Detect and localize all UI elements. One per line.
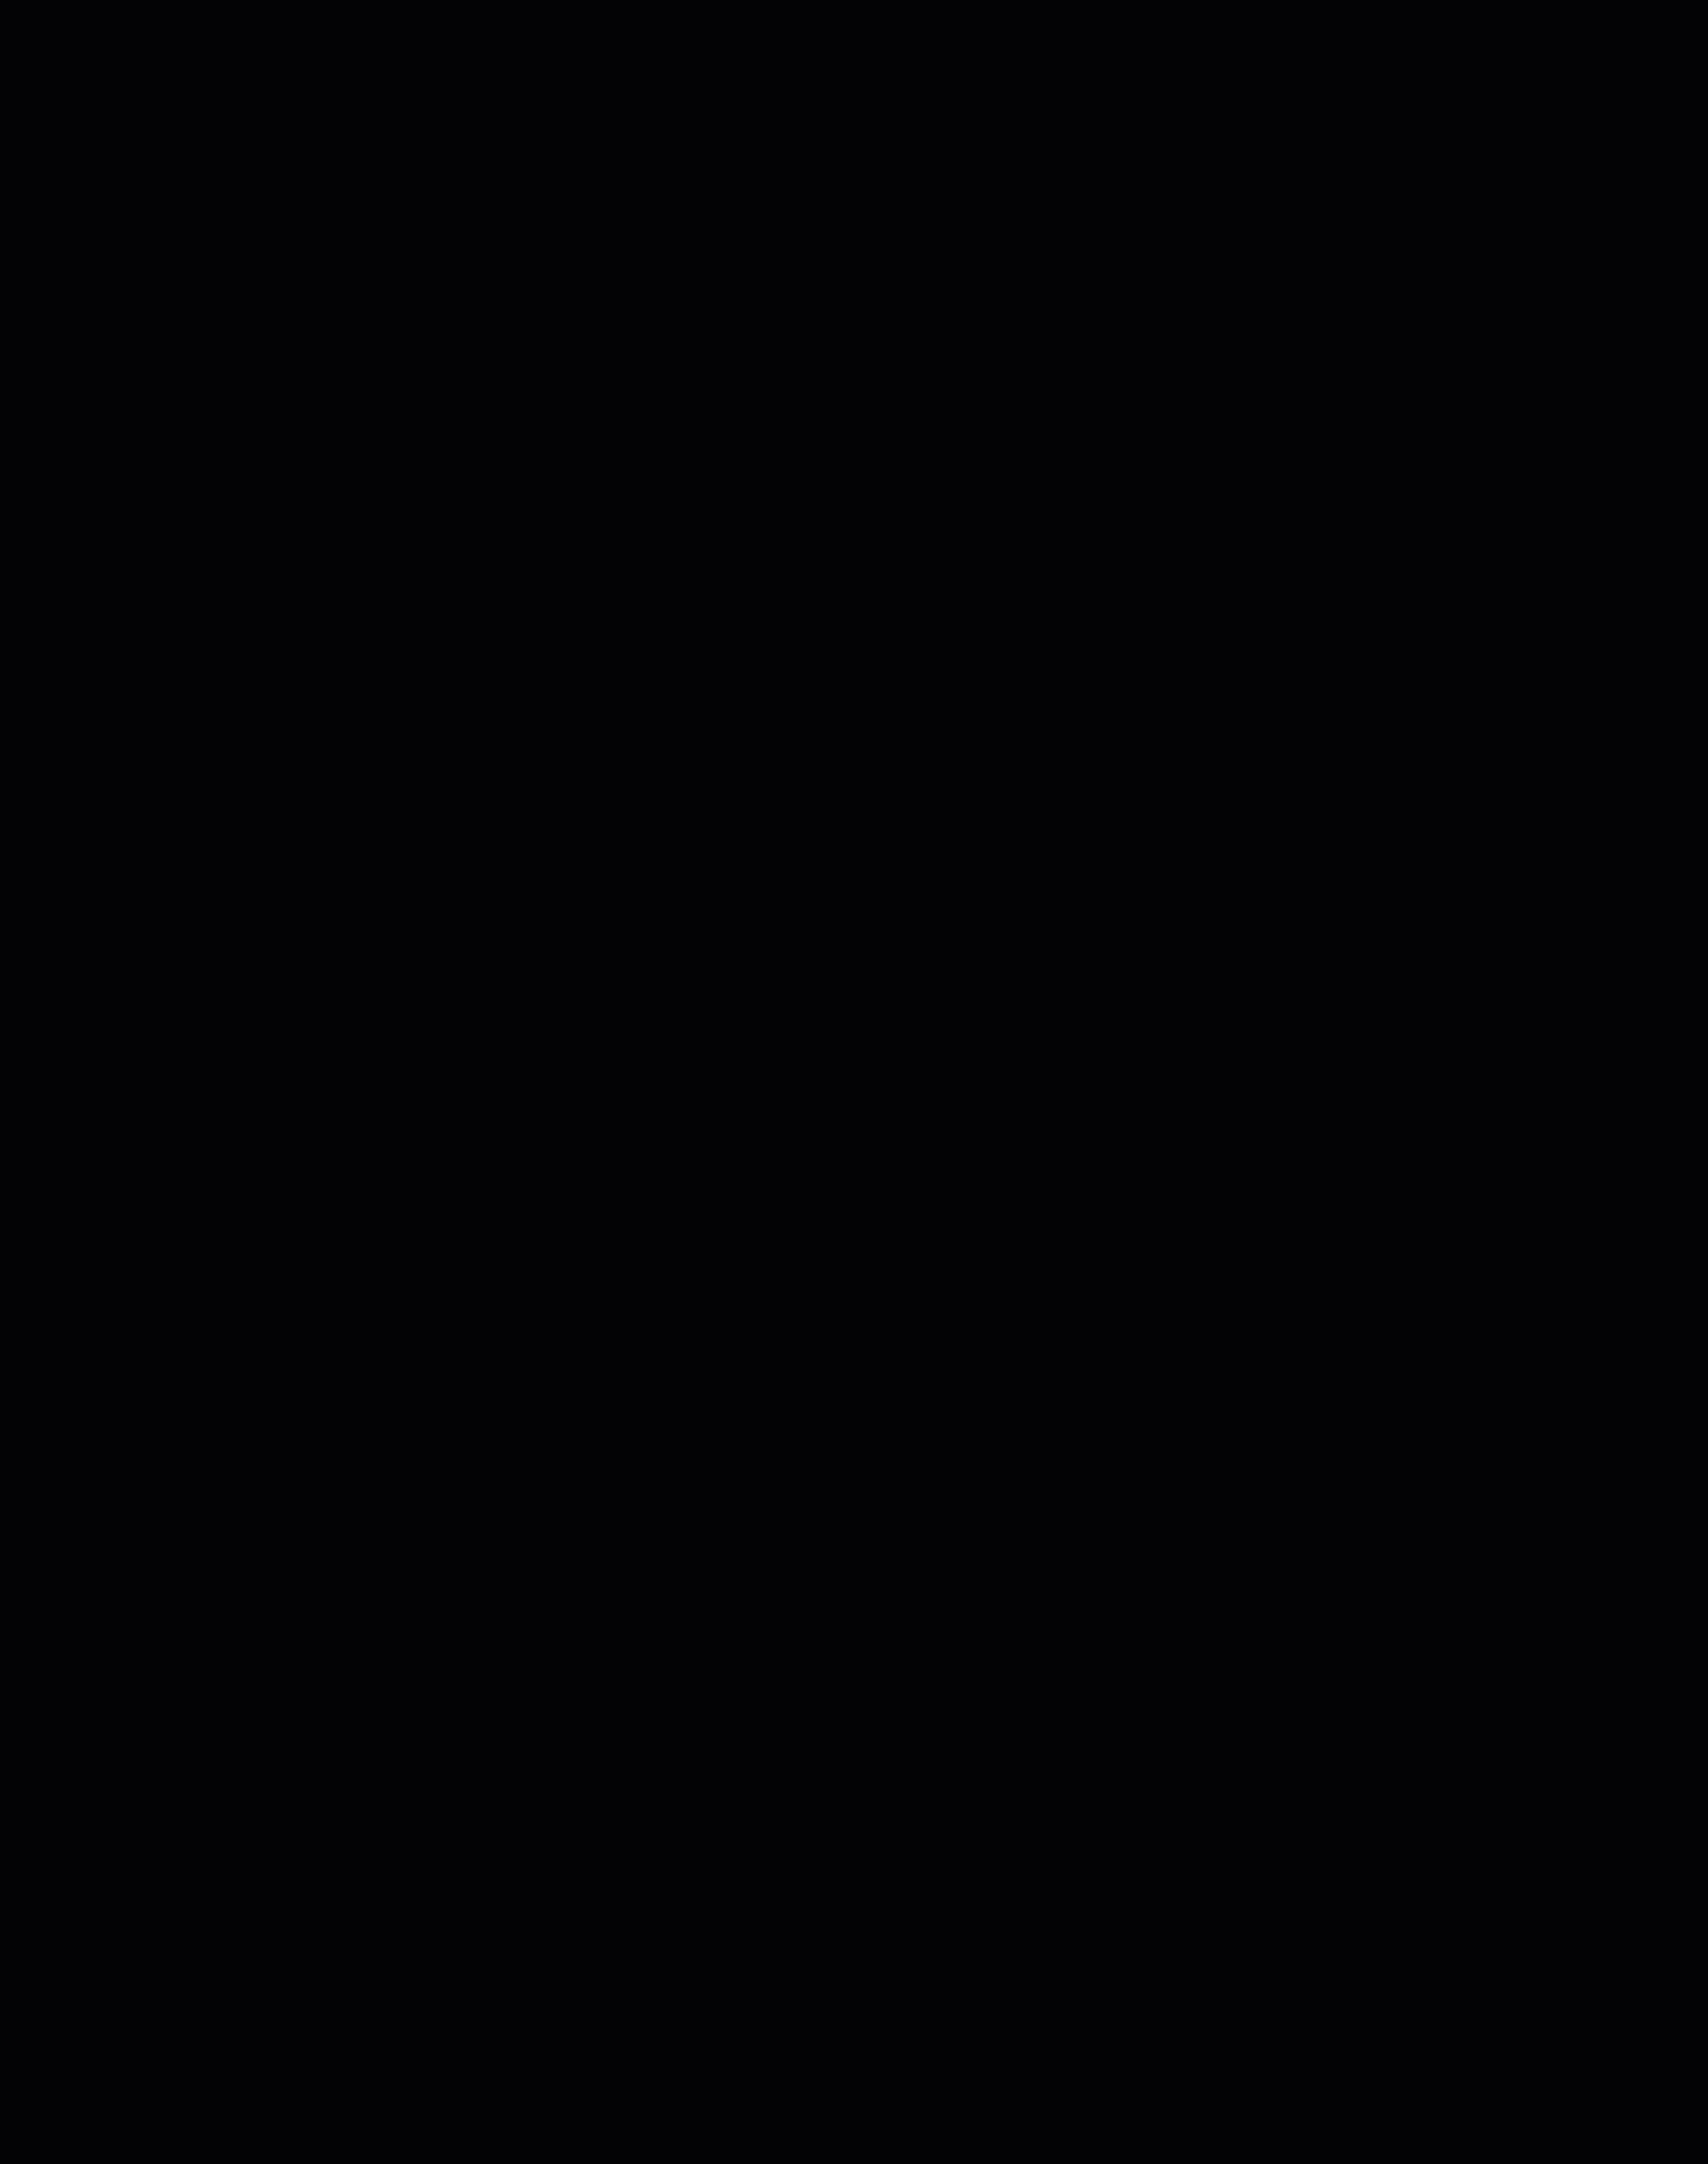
slide-mount (0, 0, 1708, 2164)
slide-viewer (0, 0, 1708, 2164)
aerial-photo-slide (0, 0, 1708, 2164)
